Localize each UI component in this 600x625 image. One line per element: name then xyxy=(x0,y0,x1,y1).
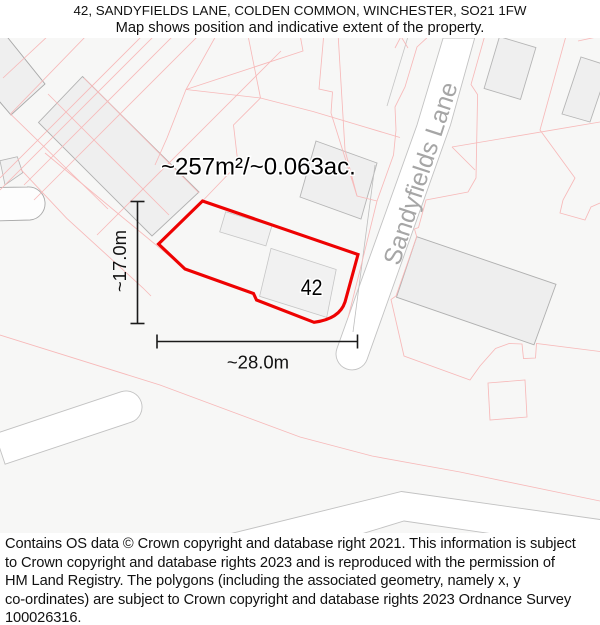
svg-text:~17.0m: ~17.0m xyxy=(109,230,130,292)
svg-text:~257m²/~0.063ac.: ~257m²/~0.063ac. xyxy=(161,154,356,181)
svg-text:~28.0m: ~28.0m xyxy=(227,352,289,373)
svg-text:42: 42 xyxy=(301,275,323,300)
